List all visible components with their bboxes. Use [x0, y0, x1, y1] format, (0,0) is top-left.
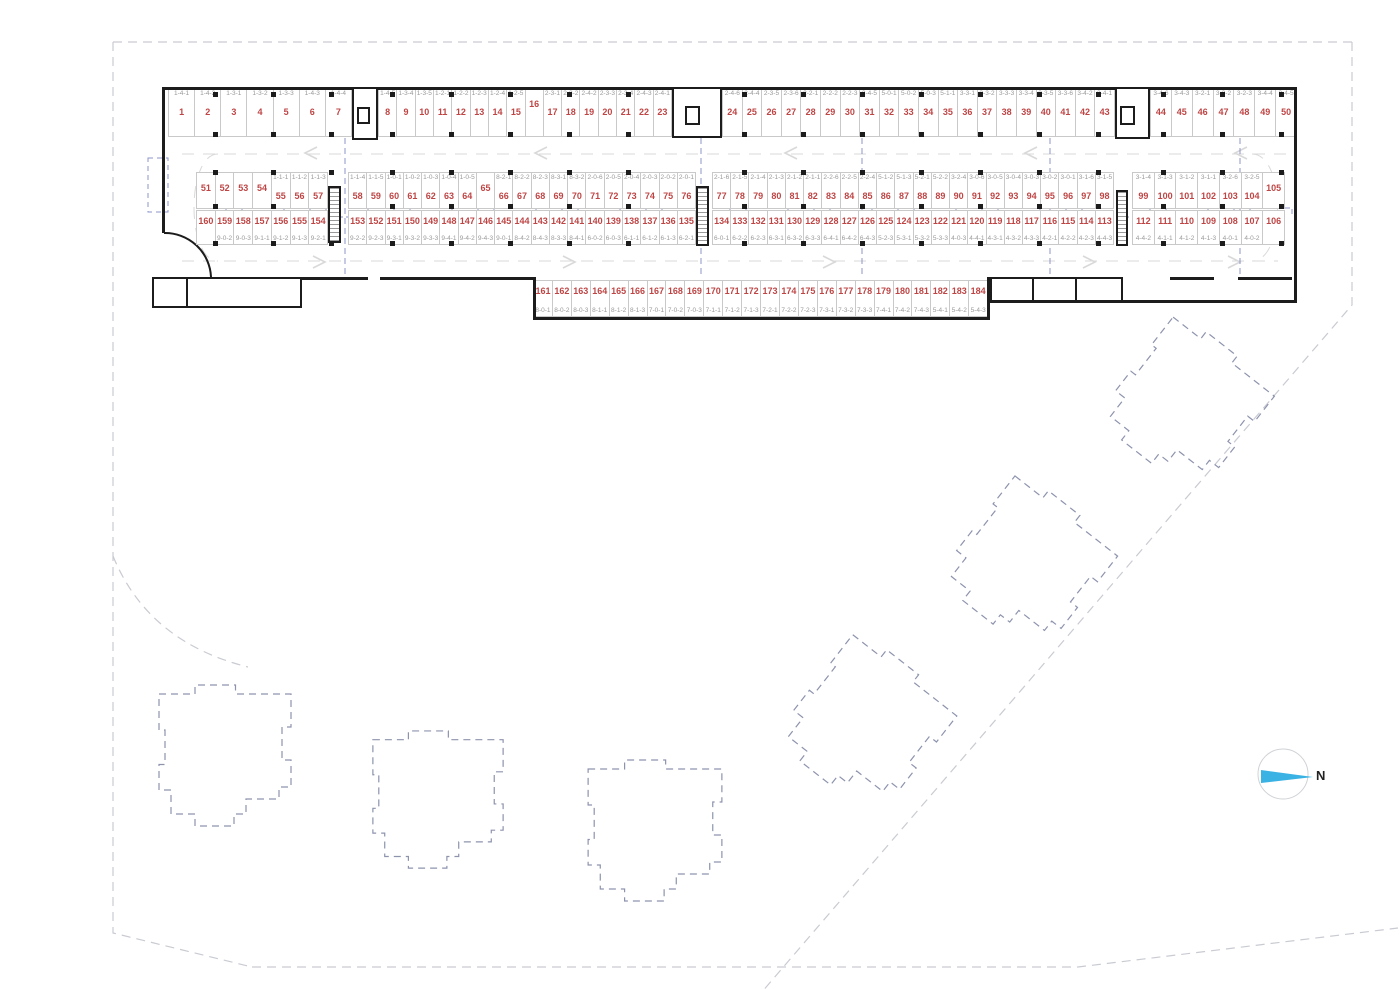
- space-number: 104: [1244, 191, 1259, 201]
- space-number: 49: [1260, 107, 1270, 117]
- room-bottom-left: [152, 277, 302, 308]
- space-code: 9-1-1: [254, 235, 269, 243]
- space-number: 122: [933, 216, 948, 226]
- parking-space: 2-1-182: [803, 173, 821, 208]
- parking-row-group: 3-1-4993-1-31003-1-21013-1-11023-2-61033…: [1132, 172, 1285, 209]
- north-compass: [1258, 749, 1313, 799]
- parking-space: 1-4-36: [299, 89, 325, 136]
- parking-row-group: 1124-4-21114-1-11104-1-21094-1-31084-0-1…: [1132, 210, 1285, 245]
- parking-space: 2-2-229: [820, 89, 840, 136]
- space-code: 3-3-6: [1058, 90, 1073, 98]
- space-number: 80: [771, 191, 781, 201]
- parking-row-group: 1539-2-21529-2-31519-3-11509-3-21499-3-3…: [348, 210, 696, 245]
- space-number: 180: [895, 286, 910, 296]
- space-number: 173: [763, 286, 778, 296]
- parking-space: 1154-2-2: [1058, 211, 1076, 244]
- space-code: 3-2-4: [951, 174, 966, 182]
- parking-space: 3-0-295: [1040, 173, 1058, 208]
- structural-column: [919, 241, 924, 246]
- structural-column: [271, 132, 276, 137]
- space-code: 7-0-2: [668, 307, 683, 315]
- parking-space: 1519-3-1: [385, 211, 403, 244]
- space-code: 2-1-6: [714, 174, 729, 182]
- parking-space: 2-4-624: [723, 89, 742, 136]
- parking-space: 1569-1-2: [271, 211, 290, 244]
- space-code: 3-4-3: [1174, 90, 1189, 98]
- parking-row-group: 1618-0-11628-0-21638-0-31648-1-11658-1-2…: [533, 280, 988, 317]
- structural-column: [626, 204, 631, 209]
- wall-parking-band-bottom: [533, 317, 990, 320]
- parking-space: 1276-4-2: [840, 211, 858, 244]
- parking-space: 3-4-242: [1075, 89, 1095, 136]
- space-number: 57: [313, 191, 323, 201]
- space-number: 40: [1041, 107, 1051, 117]
- structural-column: [1161, 204, 1166, 209]
- stairwell-right-lobby: [1120, 106, 1135, 125]
- space-code: 7-2-1: [762, 307, 777, 315]
- parking-space: 3-3-439: [1016, 89, 1036, 136]
- space-number: 146: [478, 216, 493, 226]
- parking-space: 1489-4-1: [439, 211, 457, 244]
- space-number: 151: [387, 216, 402, 226]
- structural-column: [978, 170, 983, 175]
- space-code: 4-1-2: [1179, 235, 1194, 243]
- space-number: 178: [857, 286, 872, 296]
- space-number: 108: [1223, 216, 1238, 226]
- space-number: 98: [1100, 191, 1110, 201]
- space-code: 3-0-4: [1006, 174, 1021, 182]
- parking-space: 1-1-256: [290, 173, 309, 208]
- parking-space: 1628-0-2: [552, 281, 571, 316]
- parking-space: 16: [525, 89, 543, 136]
- space-code: 6-2-1: [679, 235, 694, 243]
- space-number: 15: [511, 107, 521, 117]
- parking-space: 2-3-526: [761, 89, 781, 136]
- space-code: 4-2-2: [1060, 235, 1075, 243]
- space-number: 156: [273, 216, 288, 226]
- structural-column: [213, 170, 218, 175]
- structural-column: [271, 92, 276, 97]
- space-number: 109: [1201, 216, 1216, 226]
- space-number: 30: [845, 107, 855, 117]
- parking-space: 1225-3-3: [931, 211, 949, 244]
- space-number: 166: [630, 286, 645, 296]
- parking-space: 8-3-270: [567, 173, 585, 208]
- parking-space: 2-4-219: [579, 89, 597, 136]
- space-code: 3-2-3: [1237, 90, 1252, 98]
- space-number: 103: [1223, 191, 1238, 201]
- structural-column: [801, 92, 806, 97]
- parking-space: 1529-2-3: [366, 211, 384, 244]
- structural-column: [508, 170, 513, 175]
- space-number: 107: [1244, 216, 1259, 226]
- space-number: 97: [1081, 191, 1091, 201]
- parking-space: 1677-0-1: [647, 281, 666, 316]
- space-number: 2: [205, 107, 210, 117]
- structural-column: [1220, 170, 1225, 175]
- structural-column: [1220, 241, 1225, 246]
- parking-space: 1757-2-3: [798, 281, 817, 316]
- building-footprint-outline: [159, 685, 291, 826]
- parking-space: 5-1-387: [894, 173, 912, 208]
- parking-space: 2-4-123: [653, 89, 671, 136]
- space-number: 24: [727, 107, 737, 117]
- space-code: 9-2-1: [311, 235, 326, 243]
- parking-space: 1787-3-3: [855, 281, 874, 316]
- space-code: 3-0-3: [1024, 174, 1039, 182]
- space-number: 150: [405, 216, 420, 226]
- space-code: 3-4-2: [1077, 90, 1092, 98]
- space-number: 183: [952, 286, 967, 296]
- space-code: 5-2-2: [933, 174, 948, 182]
- parking-space: 52: [215, 173, 234, 208]
- structural-column: [978, 241, 983, 246]
- space-code: 7-3-1: [819, 307, 834, 315]
- stairwell-left-lobby: [357, 107, 370, 124]
- space-number: 90: [954, 191, 964, 201]
- parking-space: 2-0-572: [604, 173, 622, 208]
- space-code: 2-1-5: [732, 174, 747, 182]
- parking-space: 160: [197, 211, 215, 244]
- space-number: 157: [255, 216, 270, 226]
- structural-column: [567, 204, 572, 209]
- space-code: 2-2-2: [823, 90, 838, 98]
- space-number: 66: [499, 191, 509, 201]
- space-number: 7: [336, 107, 341, 117]
- parking-space: 3-1-3100: [1154, 173, 1176, 208]
- space-code: 9-3-2: [405, 235, 420, 243]
- parking-space: 2-0-374: [640, 173, 658, 208]
- parking-space: 1618-0-1: [534, 281, 552, 316]
- space-code: 5-4-1: [933, 307, 948, 315]
- parking-space: 2-0-671: [585, 173, 603, 208]
- parking-row-group: 1601599-0-21589-0-31579-1-11569-1-21559-…: [196, 210, 328, 245]
- space-number: 52: [220, 183, 230, 193]
- space-number: 62: [426, 191, 436, 201]
- parking-space: 1549-2-1: [308, 211, 327, 244]
- space-code: 6-3-3: [805, 235, 820, 243]
- space-number: 19: [584, 107, 594, 117]
- plan-linework: N: [0, 0, 1400, 989]
- parking-space: 5-0-233: [898, 89, 918, 136]
- parking-space: 3-2-5104: [1241, 173, 1263, 208]
- space-number: 87: [899, 191, 909, 201]
- space-number: 106: [1266, 216, 1281, 226]
- structural-column: [508, 132, 513, 137]
- space-number: 172: [744, 286, 759, 296]
- structural-column: [1279, 92, 1284, 97]
- space-number: 96: [1063, 191, 1073, 201]
- space-number: 81: [790, 191, 800, 201]
- parking-space: 1817-4-3: [911, 281, 930, 316]
- parking-space: 5-2-188: [913, 173, 931, 208]
- space-number: 53: [238, 183, 248, 193]
- space-code: 2-2-4: [860, 174, 875, 182]
- structural-column: [801, 241, 806, 246]
- parking-space: 5-1-286: [876, 173, 894, 208]
- structural-column: [1161, 132, 1166, 137]
- space-code: 9-2-3: [368, 235, 383, 243]
- space-code: 1-0-4: [441, 174, 456, 182]
- space-code: 2-4-6: [725, 90, 740, 98]
- space-code: 9-4-2: [460, 235, 475, 243]
- parking-space: 8-2-267: [512, 173, 530, 208]
- space-code: 2-1-4: [750, 174, 765, 182]
- structural-column: [508, 241, 513, 246]
- space-code: 1-4-1: [174, 90, 189, 98]
- structural-column: [271, 170, 276, 175]
- space-code: 3-3-1: [960, 90, 975, 98]
- parking-space: 2-3-320: [598, 89, 616, 136]
- parking-space: 1-0-160: [385, 173, 403, 208]
- space-number: 160: [198, 216, 213, 226]
- space-code: 2-1-1: [805, 174, 820, 182]
- space-number: 61: [407, 191, 417, 201]
- space-code: 4-3-1: [988, 235, 1003, 243]
- space-code: 8-2-2: [514, 174, 529, 182]
- space-code: 1-1-1: [273, 174, 288, 182]
- parking-space: 1194-3-1: [986, 211, 1004, 244]
- space-code: 2-1-3: [769, 174, 784, 182]
- parking-space: 1-3-510: [415, 89, 433, 136]
- parking-space: 2-1-380: [767, 173, 785, 208]
- space-number: 51: [201, 183, 211, 193]
- space-number: 115: [1061, 216, 1076, 226]
- space-number: 70: [572, 191, 582, 201]
- space-number: 16: [529, 99, 539, 109]
- structural-column: [978, 204, 983, 209]
- parking-space: 3-2-490: [949, 173, 967, 208]
- parking-space: 1-0-564: [458, 173, 476, 208]
- space-number: 74: [645, 191, 655, 201]
- space-number: 89: [935, 191, 945, 201]
- space-number: 79: [753, 191, 763, 201]
- space-number: 168: [668, 286, 683, 296]
- space-number: 92: [990, 191, 1000, 201]
- parking-space: 2-1-677: [713, 173, 730, 208]
- space-number: 139: [606, 216, 621, 226]
- space-code: 6-0-2: [587, 235, 602, 243]
- space-number: 119: [988, 216, 1003, 226]
- space-number: 60: [389, 191, 399, 201]
- parking-space: 1-2-313: [470, 89, 488, 136]
- parking-space: 53: [233, 173, 252, 208]
- parking-space: 1797-4-1: [874, 281, 893, 316]
- parking-space: 2-1-281: [785, 173, 803, 208]
- space-code: 2-3-1: [545, 90, 560, 98]
- space-code: 7-0-3: [687, 307, 702, 315]
- wall-storage-a: [1170, 277, 1214, 280]
- space-code: 1-3-1: [226, 90, 241, 98]
- structural-column: [919, 132, 924, 137]
- space-number: 124: [896, 216, 911, 226]
- building-footprints: [159, 310, 1280, 901]
- space-code: 5-0-2: [901, 90, 916, 98]
- building-footprint-outline: [1094, 310, 1280, 497]
- space-code: 9-0-2: [217, 235, 232, 243]
- structural-column: [860, 132, 865, 137]
- structural-column: [626, 170, 631, 175]
- structural-column: [742, 204, 747, 209]
- space-number: 182: [933, 286, 948, 296]
- space-code: 8-4-2: [514, 235, 529, 243]
- space-number: 141: [569, 216, 584, 226]
- space-code: 2-3-6: [783, 90, 798, 98]
- space-code: 3-1-2: [1179, 174, 1194, 182]
- space-number: 169: [687, 286, 702, 296]
- space-number: 134: [714, 216, 729, 226]
- structural-column: [626, 132, 631, 137]
- space-number: 113: [1097, 216, 1112, 226]
- parking-space: 1835-4-2: [949, 281, 968, 316]
- space-number: 117: [1024, 216, 1039, 226]
- space-number: 17: [547, 107, 557, 117]
- space-number: 167: [649, 286, 664, 296]
- space-code: 1-2-2: [453, 90, 468, 98]
- parking-space: 106: [1262, 211, 1284, 244]
- space-number: 165: [611, 286, 626, 296]
- space-number: 76: [681, 191, 691, 201]
- space-number: 181: [914, 286, 929, 296]
- parking-space: 1807-4-2: [893, 281, 912, 316]
- structural-column: [742, 241, 747, 246]
- space-number: 77: [717, 191, 727, 201]
- parking-space: 1825-4-1: [930, 281, 949, 316]
- space-code: 2-0-1: [679, 174, 694, 182]
- space-code: 1-1-4: [350, 174, 365, 182]
- stair-shaft-right: [1116, 190, 1128, 246]
- parking-space: 1094-1-3: [1197, 211, 1219, 244]
- space-number: 145: [496, 216, 511, 226]
- structural-column: [390, 241, 395, 246]
- space-code: 5-4-2: [952, 307, 967, 315]
- parking-space: 1-1-155: [271, 173, 290, 208]
- space-number: 138: [624, 216, 639, 226]
- space-code: 2-3-3: [600, 90, 615, 98]
- space-number: 154: [311, 216, 326, 226]
- space-number: 147: [460, 216, 475, 226]
- space-number: 184: [971, 286, 986, 296]
- structural-column: [919, 92, 924, 97]
- space-code: 1-2-4: [490, 90, 505, 98]
- space-number: 3: [231, 107, 236, 117]
- space-number: 112: [1136, 216, 1151, 226]
- parking-space: 1-4-11: [169, 89, 194, 136]
- parking-space: 1-3-24: [246, 89, 272, 136]
- parking-space: 2-3-117: [543, 89, 561, 136]
- space-number: 170: [706, 286, 721, 296]
- parking-space: 1648-1-1: [590, 281, 609, 316]
- space-number: 42: [1080, 107, 1090, 117]
- parking-space: 3-4-345: [1171, 89, 1192, 136]
- space-number: 177: [838, 286, 853, 296]
- space-code: 7-4-1: [876, 307, 891, 315]
- space-number: 4: [257, 107, 262, 117]
- space-number: 36: [962, 107, 972, 117]
- parking-space: 2-4-322: [634, 89, 652, 136]
- parking-space: 1266-4-3: [858, 211, 876, 244]
- space-code: 2-4-1: [655, 90, 670, 98]
- space-number: 64: [462, 191, 472, 201]
- parking-space: 1438-4-3: [531, 211, 549, 244]
- wall-right: [1294, 87, 1297, 303]
- parking-space: 1599-0-2: [215, 211, 234, 244]
- space-code: 2-0-6: [587, 174, 602, 182]
- parking-space: 3-0-394: [1022, 173, 1040, 208]
- space-code: 5-2-3: [878, 235, 893, 243]
- space-number: 176: [819, 286, 834, 296]
- parking-space: 2-1-578: [730, 173, 748, 208]
- structural-column: [801, 132, 806, 137]
- space-number: 47: [1219, 107, 1229, 117]
- space-number: 161: [535, 286, 550, 296]
- parking-space: 3-0-691: [967, 173, 985, 208]
- space-number: 31: [864, 107, 874, 117]
- parking-space: 51: [197, 173, 215, 208]
- space-code: 3-4-4: [1258, 90, 1273, 98]
- space-code: 2-4-2: [582, 90, 597, 98]
- space-number: 159: [217, 216, 232, 226]
- space-code: 3-0-6: [969, 174, 984, 182]
- space-code: 8-0-1: [535, 307, 550, 315]
- space-code: 2-0-3: [642, 174, 657, 182]
- parking-space: 1499-3-3: [421, 211, 439, 244]
- space-code: 9-0-3: [236, 235, 251, 243]
- space-code: 5-1-1: [940, 90, 955, 98]
- structural-column: [1279, 241, 1284, 246]
- parking-space: 1687-0-2: [665, 281, 684, 316]
- parking-space: 1559-1-3: [290, 211, 309, 244]
- parking-space: 1306-3-2: [785, 211, 803, 244]
- space-code: 7-1-3: [744, 307, 759, 315]
- space-number: 133: [732, 216, 747, 226]
- space-code: 5-3-1: [896, 235, 911, 243]
- parking-row-group: 2-1-6772-1-5782-1-4792-1-3802-1-2812-1-1…: [712, 172, 1114, 209]
- parking-space: 3-4-449: [1254, 89, 1275, 136]
- space-number: 26: [766, 107, 776, 117]
- wall-left: [162, 87, 165, 233]
- space-number: 132: [751, 216, 766, 226]
- structural-column: [1220, 204, 1225, 209]
- space-code: 6-4-1: [823, 235, 838, 243]
- space-number: 91: [972, 191, 982, 201]
- space-code: 1-1-5: [368, 174, 383, 182]
- parking-space: 5-0-132: [879, 89, 899, 136]
- parking-space: 1707-1-1: [703, 281, 722, 316]
- structural-column: [1161, 170, 1166, 175]
- storage-divider-2: [1075, 277, 1077, 302]
- wall-bottom-left-b: [380, 277, 536, 280]
- space-number: 20: [602, 107, 612, 117]
- structural-column: [1279, 204, 1284, 209]
- parking-space: 5-2-289: [931, 173, 949, 208]
- space-number: 54: [257, 183, 267, 193]
- space-number: 34: [923, 107, 933, 117]
- space-code: 8-1-2: [611, 307, 626, 315]
- space-number: 48: [1239, 107, 1249, 117]
- structural-column: [1037, 204, 1042, 209]
- space-code: 2-3-5: [764, 90, 779, 98]
- space-number: 102: [1201, 191, 1216, 201]
- parking-space: 1204-4-1: [967, 211, 985, 244]
- storage-rooms-right: [990, 277, 1123, 302]
- parking-space: 1214-0-3: [949, 211, 967, 244]
- parking-space: 1286-4-1: [821, 211, 839, 244]
- parking-space: 54: [252, 173, 271, 208]
- space-number: 14: [493, 107, 503, 117]
- space-number: 41: [1060, 107, 1070, 117]
- space-number: 152: [368, 216, 383, 226]
